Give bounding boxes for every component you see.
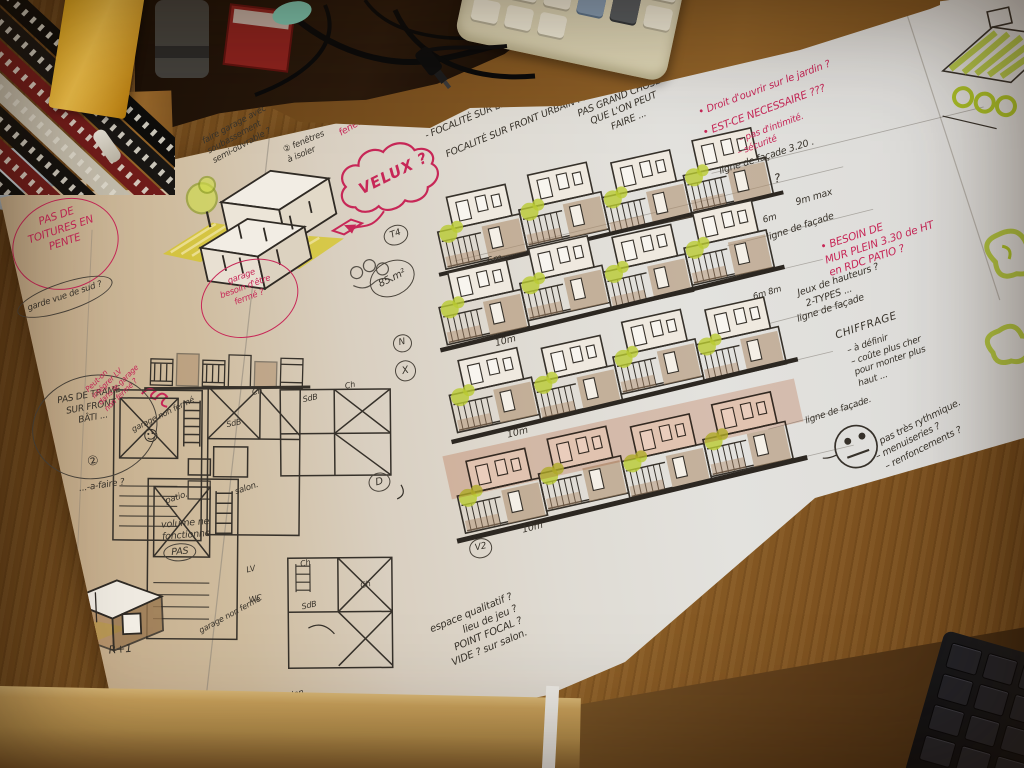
calc-key-blank3 <box>503 4 534 31</box>
plan-label-ch-4: Ch <box>359 579 371 591</box>
dim-10m-row4: 10m <box>521 520 544 536</box>
roof-window-mark <box>331 211 387 237</box>
note-r1: R+1 <box>108 642 132 658</box>
plan-label-lv: LV <box>245 564 256 576</box>
elevation-row-4 <box>439 378 813 541</box>
calc-key-blue2 <box>576 0 607 17</box>
calc-key-blank1 <box>643 4 674 31</box>
green-perspective-sketch <box>923 0 1024 139</box>
desk-front-edge <box>0 686 581 768</box>
calc-key-0: 0 <box>510 0 541 3</box>
calc-key-dark <box>609 0 646 24</box>
headphone-jack <box>392 42 512 117</box>
plan-label-ch-3: Ch <box>299 558 311 570</box>
calc-key-dot: . <box>543 0 574 10</box>
calc-key-blank2 <box>470 0 501 25</box>
calc-key-blank4 <box>537 12 568 39</box>
note-volume: volume ne fonctionne PAS <box>161 516 213 563</box>
green-railing-sketch <box>985 307 1024 406</box>
green-blob-sketch <box>984 217 1024 306</box>
calc-key-mplus: M+ <box>649 0 680 3</box>
plan-label-ch-2: Ch <box>344 380 356 392</box>
smiley-face-sketch <box>817 422 881 475</box>
plan-label-ch-1: Ch <box>251 386 263 398</box>
desk-scene: 6m 10m 10m 10m PAS DE TOITURES EN PENTE … <box>0 0 1024 768</box>
